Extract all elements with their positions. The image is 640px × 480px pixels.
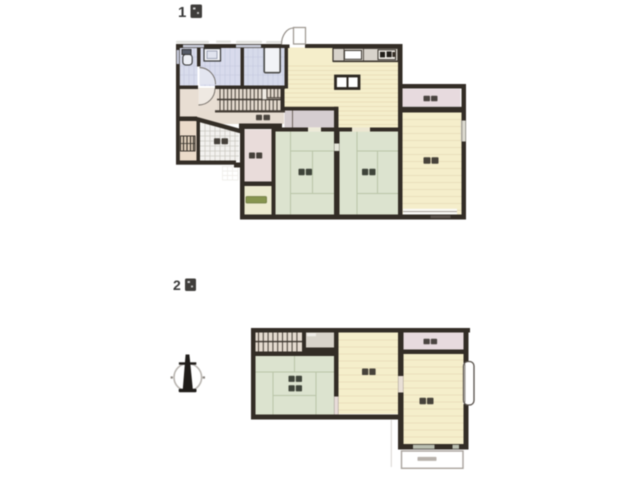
svg-text:2: 2 [173, 277, 181, 293]
svg-text:1: 1 [178, 4, 186, 21]
